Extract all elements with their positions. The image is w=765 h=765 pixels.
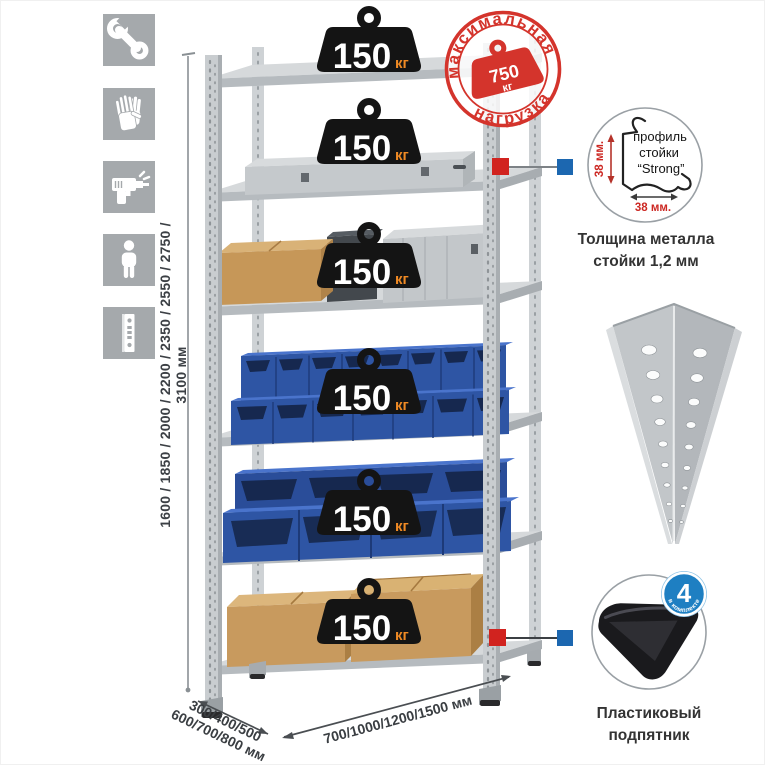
connector-red-square bbox=[489, 629, 506, 646]
count-badge: 4 в комплекте bbox=[661, 571, 707, 617]
svg-text:4: 4 bbox=[677, 578, 692, 608]
profile-caption: Толщина металла стойки 1,2 мм bbox=[541, 229, 751, 273]
profile-caption-line2: стойки 1,2 мм bbox=[541, 251, 751, 273]
svg-text:150: 150 bbox=[333, 37, 391, 76]
foot-caption: Пластиковый подпятник bbox=[544, 703, 754, 747]
svg-text:профиль: профиль bbox=[633, 129, 687, 144]
foot-detail-circle: 4 в комплекте bbox=[592, 571, 707, 689]
foot-caption-line2: подпятник bbox=[544, 725, 754, 747]
profile-caption-line1: Толщина металла bbox=[541, 229, 751, 251]
shelf-load-badge: 150 кг bbox=[317, 102, 421, 169]
svg-text:кг: кг bbox=[395, 518, 409, 535]
upright-front-right bbox=[483, 43, 496, 694]
height-dimension-label: 1600 / 1850 / 2000 / 2200 / 2350 / 2550 … bbox=[157, 207, 189, 543]
drill-icon bbox=[103, 161, 155, 213]
svg-text:стойки: стойки bbox=[639, 145, 679, 160]
svg-text:150: 150 bbox=[333, 253, 391, 292]
svg-text:кг: кг bbox=[395, 627, 409, 644]
profile-detail-circle: 38 мм. 38 мм. профиль стойки “Strong” bbox=[588, 108, 702, 222]
wrench-icon bbox=[103, 14, 155, 66]
connector-red-square bbox=[492, 158, 509, 175]
svg-text:150: 150 bbox=[333, 129, 391, 168]
connector-blue-square bbox=[557, 630, 573, 646]
svg-text:700/1000/1200/1500 мм: 700/1000/1200/1500 мм bbox=[322, 692, 474, 747]
shelf-load-badge: 150 кг bbox=[317, 10, 421, 77]
connector-blue-square bbox=[557, 159, 573, 175]
upright-profile-icon bbox=[103, 307, 155, 359]
svg-text:150: 150 bbox=[333, 609, 391, 648]
svg-text:38 мм.: 38 мм. bbox=[594, 141, 606, 177]
svg-text:150: 150 bbox=[333, 500, 391, 539]
product-infographic: 150 кг 150 кг 150 кг 150 кг bbox=[0, 0, 765, 765]
svg-text:“Strong”: “Strong” bbox=[638, 161, 685, 176]
max-load-stamp: максимальная нагрузка 750 кг bbox=[431, 1, 575, 141]
corner-post-image bbox=[606, 304, 742, 544]
svg-text:кг: кг bbox=[395, 147, 409, 164]
svg-text:кг: кг bbox=[395, 55, 409, 72]
gloves-icon bbox=[103, 88, 155, 140]
svg-text:38 мм.: 38 мм. bbox=[635, 202, 671, 214]
foot-caption-line1: Пластиковый bbox=[544, 703, 754, 725]
cardboard-box bbox=[219, 249, 321, 305]
svg-text:кг: кг bbox=[395, 271, 409, 288]
svg-text:150: 150 bbox=[333, 379, 391, 418]
width-dimension: 700/1000/1200/1500 мм bbox=[282, 675, 511, 747]
svg-text:кг: кг bbox=[395, 397, 409, 414]
upright-front-left bbox=[205, 55, 218, 706]
person-icon bbox=[103, 234, 155, 286]
